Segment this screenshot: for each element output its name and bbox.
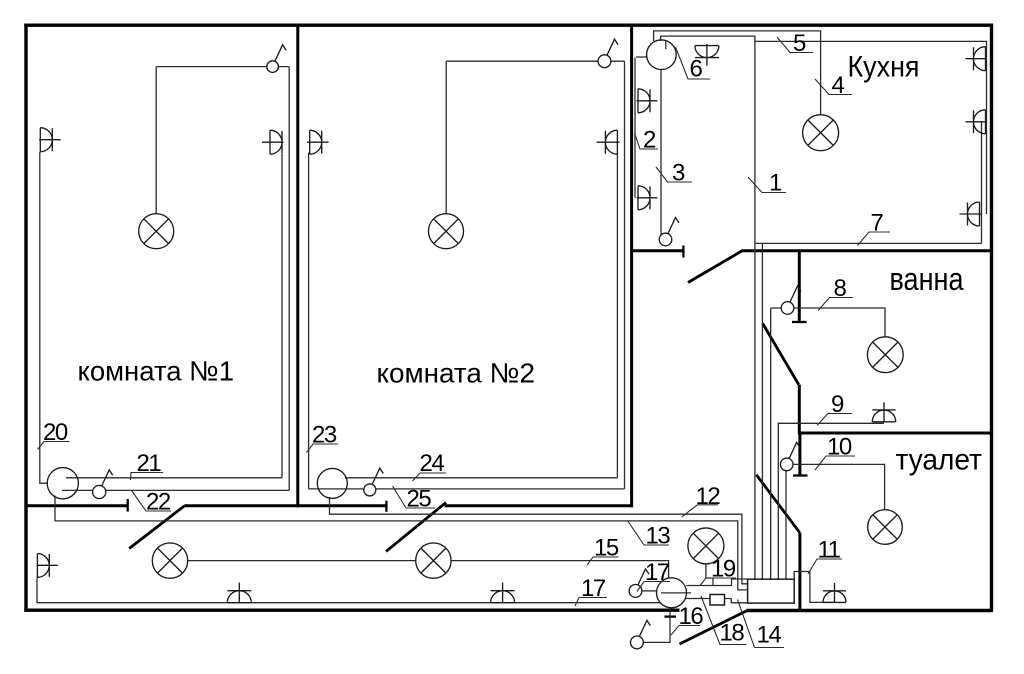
svg-text:15: 15 [594, 535, 619, 562]
svg-text:комната №1: комната №1 [78, 356, 235, 387]
svg-text:комната №2: комната №2 [377, 358, 536, 389]
svg-text:7: 7 [871, 210, 884, 237]
svg-text:6: 6 [690, 56, 703, 83]
svg-text:20: 20 [43, 419, 68, 446]
svg-text:12: 12 [696, 483, 721, 510]
svg-text:туалет: туалет [896, 444, 983, 477]
svg-text:13: 13 [646, 523, 671, 550]
svg-text:11: 11 [818, 537, 841, 564]
svg-text:25: 25 [407, 486, 432, 513]
svg-text:9: 9 [831, 391, 844, 418]
svg-text:8: 8 [834, 275, 847, 302]
svg-text:22: 22 [146, 489, 171, 516]
svg-text:1: 1 [769, 170, 782, 197]
svg-text:24: 24 [420, 450, 445, 477]
svg-text:5: 5 [793, 30, 806, 57]
svg-text:17: 17 [581, 575, 606, 602]
svg-text:ванна: ванна [890, 261, 965, 297]
svg-text:23: 23 [312, 422, 337, 449]
svg-text:14: 14 [757, 622, 782, 649]
svg-text:21: 21 [137, 450, 162, 477]
svg-text:17: 17 [645, 559, 670, 586]
svg-text:16: 16 [679, 603, 704, 630]
svg-text:10: 10 [827, 434, 852, 461]
svg-text:18: 18 [720, 620, 745, 647]
svg-text:Кухня: Кухня [848, 50, 920, 83]
svg-text:2: 2 [643, 127, 656, 154]
svg-text:19: 19 [711, 556, 736, 583]
svg-text:4: 4 [832, 72, 845, 99]
svg-text:3: 3 [672, 160, 685, 187]
